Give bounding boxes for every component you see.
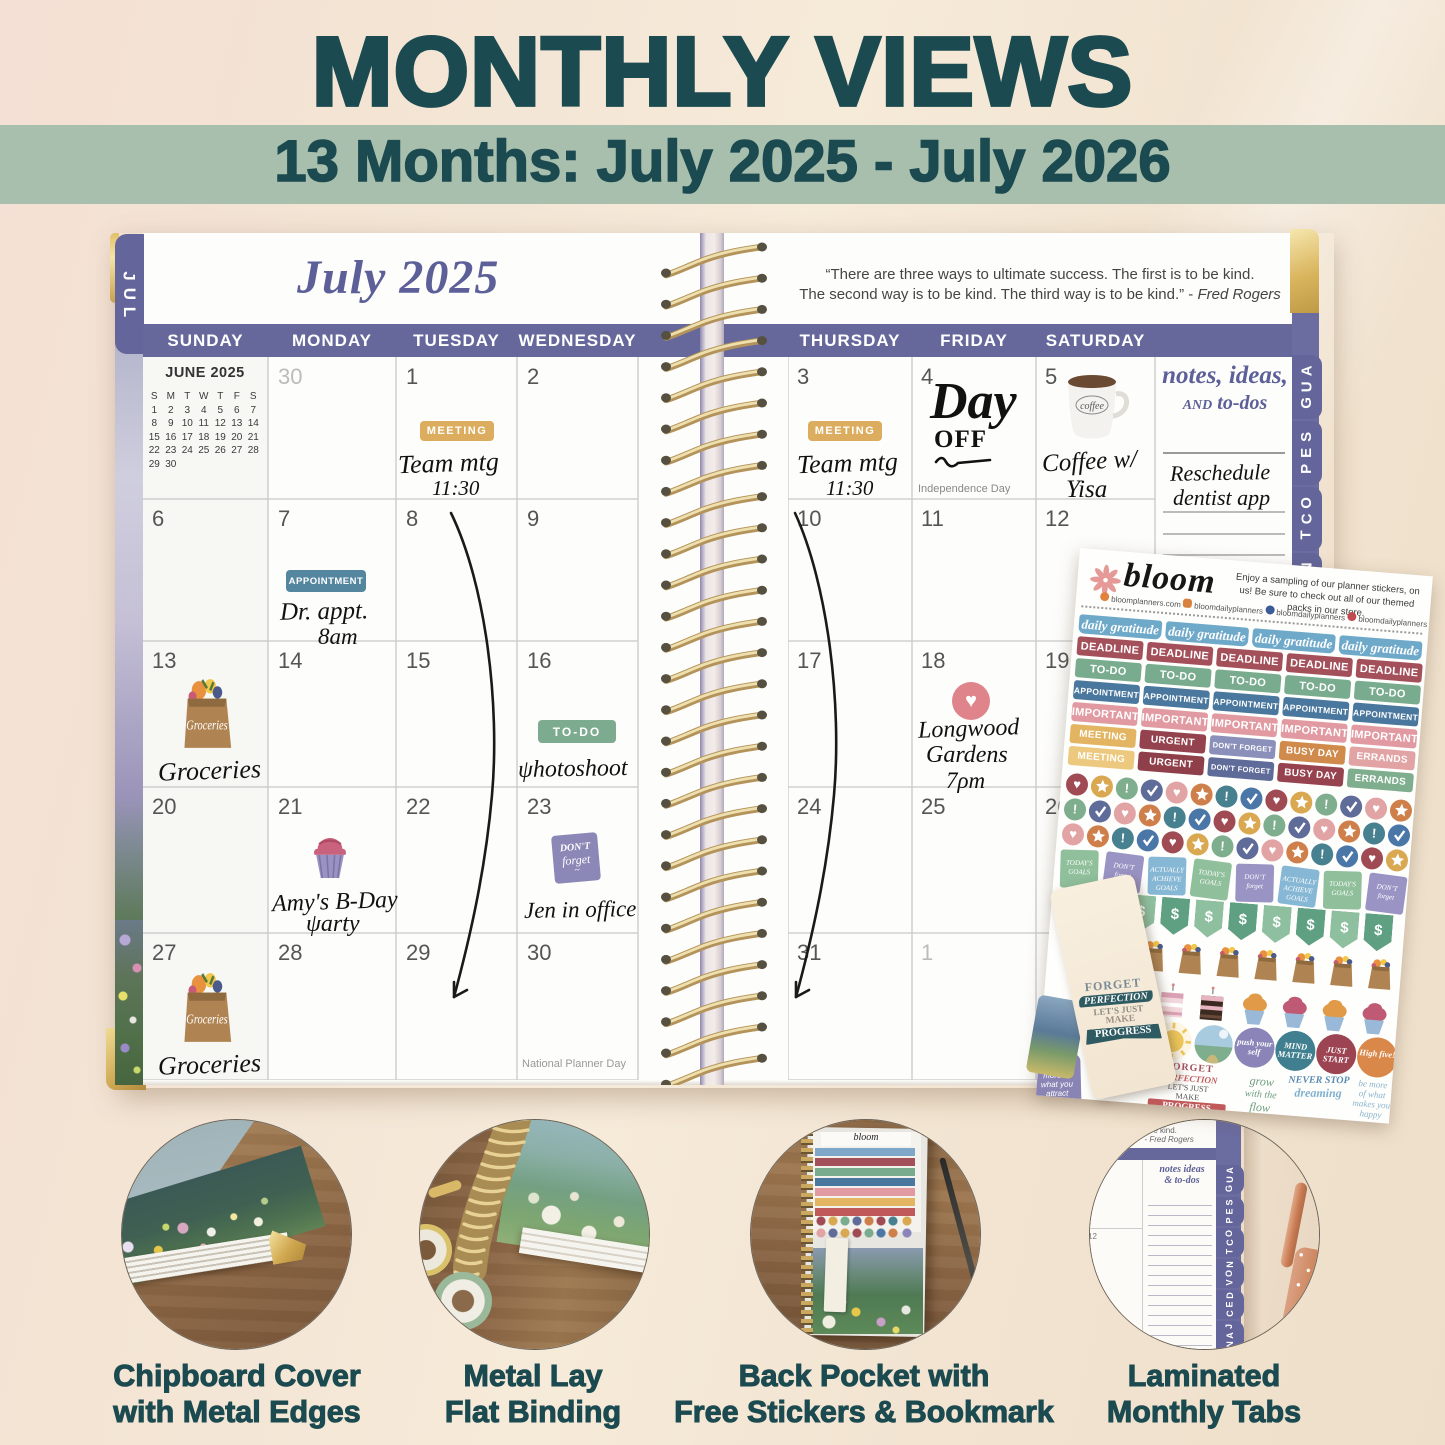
svg-text:Groceries: Groceries bbox=[186, 717, 228, 733]
svg-text:Groceries: Groceries bbox=[186, 1011, 228, 1027]
svg-text:coffee: coffee bbox=[1080, 401, 1104, 412]
